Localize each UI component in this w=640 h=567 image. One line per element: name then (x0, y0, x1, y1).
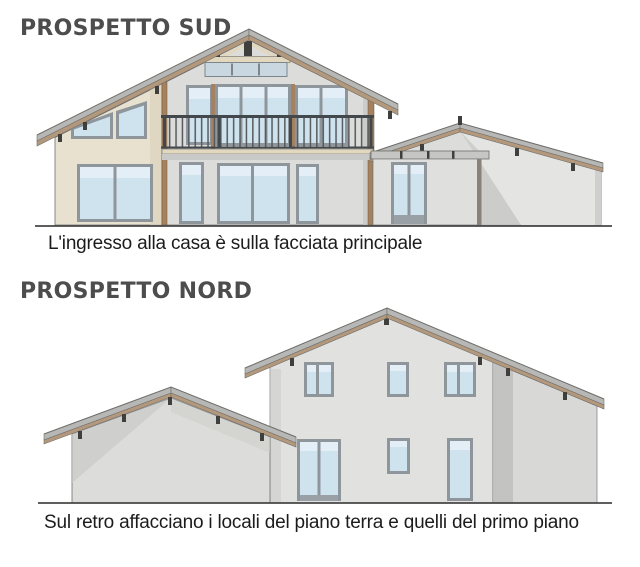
south-annex-door (391, 162, 427, 224)
south-floor-band (162, 149, 373, 160)
infographic-page: PROSPETTO SUD (0, 0, 640, 567)
north-left-annex (44, 387, 296, 503)
north-elevation-drawing (0, 295, 640, 510)
south-elevation-drawing (0, 20, 640, 232)
north-caption: Sul retro affacciano i locali del piano … (44, 512, 579, 534)
south-caption: L'ingresso alla casa è sulla facciata pr… (48, 233, 422, 255)
south-balcony-railing (161, 115, 374, 148)
south-wing-window (77, 164, 153, 222)
north-upper-windows (304, 362, 476, 397)
south-annex (370, 116, 603, 225)
south-ground-doors (179, 162, 319, 224)
south-annex-beam (371, 151, 489, 159)
